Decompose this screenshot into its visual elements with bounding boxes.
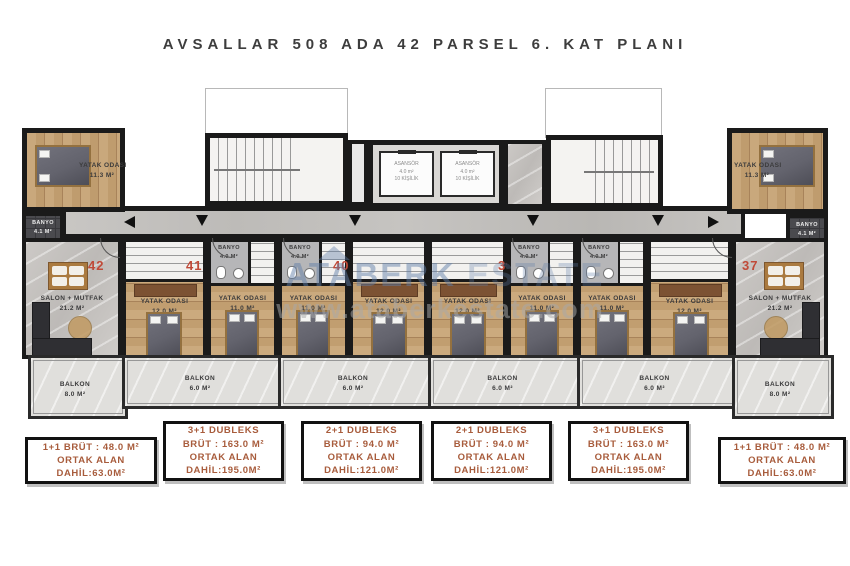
bedroom-unit42-corner: YATAK ODASI 11.3 M²	[22, 128, 125, 212]
balcony-unit39: BALKON 6.0 M²	[428, 355, 583, 409]
legend-box-unit39: 2+1 DUBLEKS BRÜT : 94.0 M² ORTAK ALAN DA…	[431, 421, 552, 481]
dining-table	[764, 262, 804, 290]
legend-line: 1+1 BRÜT : 48.0 M²	[43, 441, 140, 454]
room-label: YATAK ODASI 11.3 M²	[79, 161, 125, 181]
elevator-2: ASANSÖR 4.0 m² 10 KİŞİLİK	[440, 151, 495, 197]
legend-line: DAHİL:121.0M²	[454, 464, 529, 477]
unit-number-40: 40	[333, 258, 349, 273]
unit-number-41: 41	[186, 258, 202, 273]
dining-table	[48, 262, 88, 290]
legend-line: DAHİL:195.0M²	[186, 464, 261, 477]
bedroom-11-unit41: BANYO 4.0 M² YATAK ODASI 11.0 M²	[207, 238, 278, 359]
elevator-label: ASANSÖR 4.0 m² 10 KİŞİLİK	[381, 161, 432, 184]
legend-line: ORTAK ALAN	[328, 451, 396, 464]
balcony-unit41: BALKON 6.0 M²	[122, 355, 284, 409]
legend-line: 3+1 DUBLEKS	[188, 424, 259, 437]
toilet-icon	[586, 266, 596, 279]
wardrobe	[361, 284, 418, 297]
legend-line: BRÜT : 163.0 M²	[183, 438, 264, 451]
duplex-stair	[251, 242, 274, 286]
shaft	[348, 140, 368, 206]
rug	[68, 316, 92, 340]
floor-plan-page: AVSALLAR 508 ADA 42 PARSEL 6. KAT PLANI …	[0, 0, 850, 566]
rug	[764, 316, 788, 340]
room-label: BALKON 8.0 M²	[735, 380, 825, 400]
legend-line: 1+1 BRÜT : 48.0 M²	[734, 441, 831, 454]
wardrobe	[659, 284, 722, 297]
arrow-down-icon	[196, 215, 208, 226]
duplex-stair	[432, 242, 503, 282]
elevator-block: ASANSÖR 4.0 m² 10 KİŞİLİK ASANSÖR 4.0 m²…	[368, 140, 504, 208]
bed	[225, 310, 259, 358]
bedroom-12-unit38: YATAK ODASI 12.0 M²	[647, 238, 732, 359]
legend-box-unit41: 3+1 DUBLEKS BRÜT : 163.0 M² ORTAK ALAN D…	[163, 421, 284, 481]
salon-unit42: SALON + MUTFAK 21.2 M²	[22, 238, 122, 359]
bed	[371, 312, 407, 358]
sofa	[760, 338, 820, 356]
arrow-left-icon	[124, 216, 135, 228]
bed	[673, 312, 709, 358]
lobby	[504, 140, 546, 208]
plate	[69, 266, 84, 275]
balcony-unit40: BALKON 6.0 M²	[278, 355, 434, 409]
legend-line: 2+1 DUBLEKS	[326, 424, 397, 437]
bed	[450, 312, 486, 358]
bed	[296, 310, 330, 358]
sink-icon	[603, 268, 614, 279]
corridor	[62, 206, 745, 238]
plate	[768, 277, 783, 286]
wardrobe	[440, 284, 497, 297]
legend-line: BRÜT : 94.0 M²	[324, 438, 399, 451]
legend-line: DAHİL:121.0M²	[324, 464, 399, 477]
toilet-icon	[516, 266, 526, 279]
toilet-icon	[287, 266, 297, 279]
sink-icon	[233, 268, 244, 279]
legend-line: ORTAK ALAN	[57, 454, 125, 467]
arrow-right-icon	[708, 216, 719, 228]
arrow-down-icon	[349, 215, 361, 226]
wardrobe	[134, 284, 197, 297]
plate	[785, 266, 800, 275]
legend-box-unit42: 1+1 BRÜT : 48.0 M² ORTAK ALAN DAHİL:63.0…	[25, 437, 157, 484]
legend-line: DAHİL:63.0M²	[748, 467, 817, 480]
room-label: BALKON 6.0 M²	[431, 374, 574, 394]
room-label: BANYO 4.1 M²	[790, 221, 824, 238]
bed	[595, 310, 629, 358]
sink-icon	[304, 268, 315, 279]
salon-unit37: SALON + MUTFAK 21.2 M²	[732, 238, 828, 359]
room-label: BALKON 6.0 M²	[125, 374, 275, 394]
arrow-down-icon	[527, 215, 539, 226]
bedroom-11-unit39: BANYO 4.0 M² YATAK ODASI 11.0 M²	[507, 238, 577, 359]
balcony-unit38: BALKON 6.0 M²	[577, 355, 738, 409]
sink-icon	[533, 268, 544, 279]
legend-line: ORTAK ALAN	[190, 451, 258, 464]
duplex-stair	[353, 242, 424, 282]
legend-line: 2+1 DUBLEKS	[456, 424, 527, 437]
legend-line: ORTAK ALAN	[595, 451, 663, 464]
legend-line: ORTAK ALAN	[748, 454, 816, 467]
legend-box-unit40: 2+1 DUBLEKS BRÜT : 94.0 M² ORTAK ALAN DA…	[301, 421, 422, 481]
room-label: BANYO 4.1 M²	[26, 219, 60, 236]
bedroom-11-unit40: BANYO 4.0 M² YATAK ODASI 11.0 M²	[278, 238, 349, 359]
balcony-unit37: BALKON 8.0 M²	[732, 355, 834, 419]
elevator-1: ASANSÖR 4.0 m² 10 KİŞİLİK	[379, 151, 434, 197]
stairwell-left	[205, 133, 348, 206]
elevator-door-icon	[459, 150, 477, 154]
legend-line: DAHİL:63.0M²	[57, 467, 126, 480]
plate	[69, 277, 84, 286]
room-label: YATAK ODASI 11.3 M²	[734, 161, 780, 181]
plate	[785, 277, 800, 286]
stair-rail	[584, 171, 654, 173]
roof-outline-right	[545, 88, 662, 138]
arrow-down-icon	[652, 215, 664, 226]
room-label: BALKON 8.0 M²	[31, 380, 119, 400]
stair-rail	[214, 169, 300, 171]
bedroom-12-unit39: YATAK ODASI 12.0 M²	[428, 238, 507, 359]
legend-line: BRÜT : 94.0 M²	[454, 438, 529, 451]
duplex-stair	[550, 242, 573, 286]
unit-number-42: 42	[88, 258, 104, 273]
sofa	[32, 338, 92, 356]
bedroom-12-unit41: YATAK ODASI 12.0 M²	[122, 238, 207, 359]
legend-line: ORTAK ALAN	[458, 451, 526, 464]
bed	[146, 312, 182, 358]
stair-landing	[299, 138, 343, 201]
bed	[525, 310, 559, 358]
roof-outline-left	[205, 88, 348, 134]
legend-line: DAHİL:195.0M²	[591, 464, 666, 477]
stairwell-right	[546, 135, 663, 208]
bedroom-12-unit40: YATAK ODASI 12.0 M²	[349, 238, 428, 359]
legend-box-unit38: 3+1 DUBLEKS BRÜT : 163.0 M² ORTAK ALAN D…	[568, 421, 689, 481]
balcony-unit42: BALKON 8.0 M²	[28, 355, 128, 419]
plate	[52, 266, 67, 275]
bedroom-11-unit38: BANYO 4.0 M² YATAK ODASI 11.0 M²	[577, 238, 647, 359]
toilet-icon	[216, 266, 226, 279]
legend-line: 3+1 DUBLEKS	[593, 424, 664, 437]
duplex-stair	[620, 242, 643, 286]
legend-box-unit37: 1+1 BRÜT : 48.0 M² ORTAK ALAN DAHİL:63.0…	[718, 437, 846, 484]
elevator-label: ASANSÖR 4.0 m² 10 KİŞİLİK	[442, 161, 493, 184]
page-title: AVSALLAR 508 ADA 42 PARSEL 6. KAT PLANI	[0, 36, 850, 53]
bedroom-unit37-corner: YATAK ODASI 11.3 M²	[727, 128, 828, 214]
room-label: BALKON 6.0 M²	[580, 374, 729, 394]
elevator-door-icon	[398, 150, 416, 154]
legend-line: BRÜT : 163.0 M²	[588, 438, 669, 451]
room-label: BALKON 6.0 M²	[281, 374, 425, 394]
plate	[768, 266, 783, 275]
plate	[52, 277, 67, 286]
unit-number-37: 37	[742, 258, 758, 273]
